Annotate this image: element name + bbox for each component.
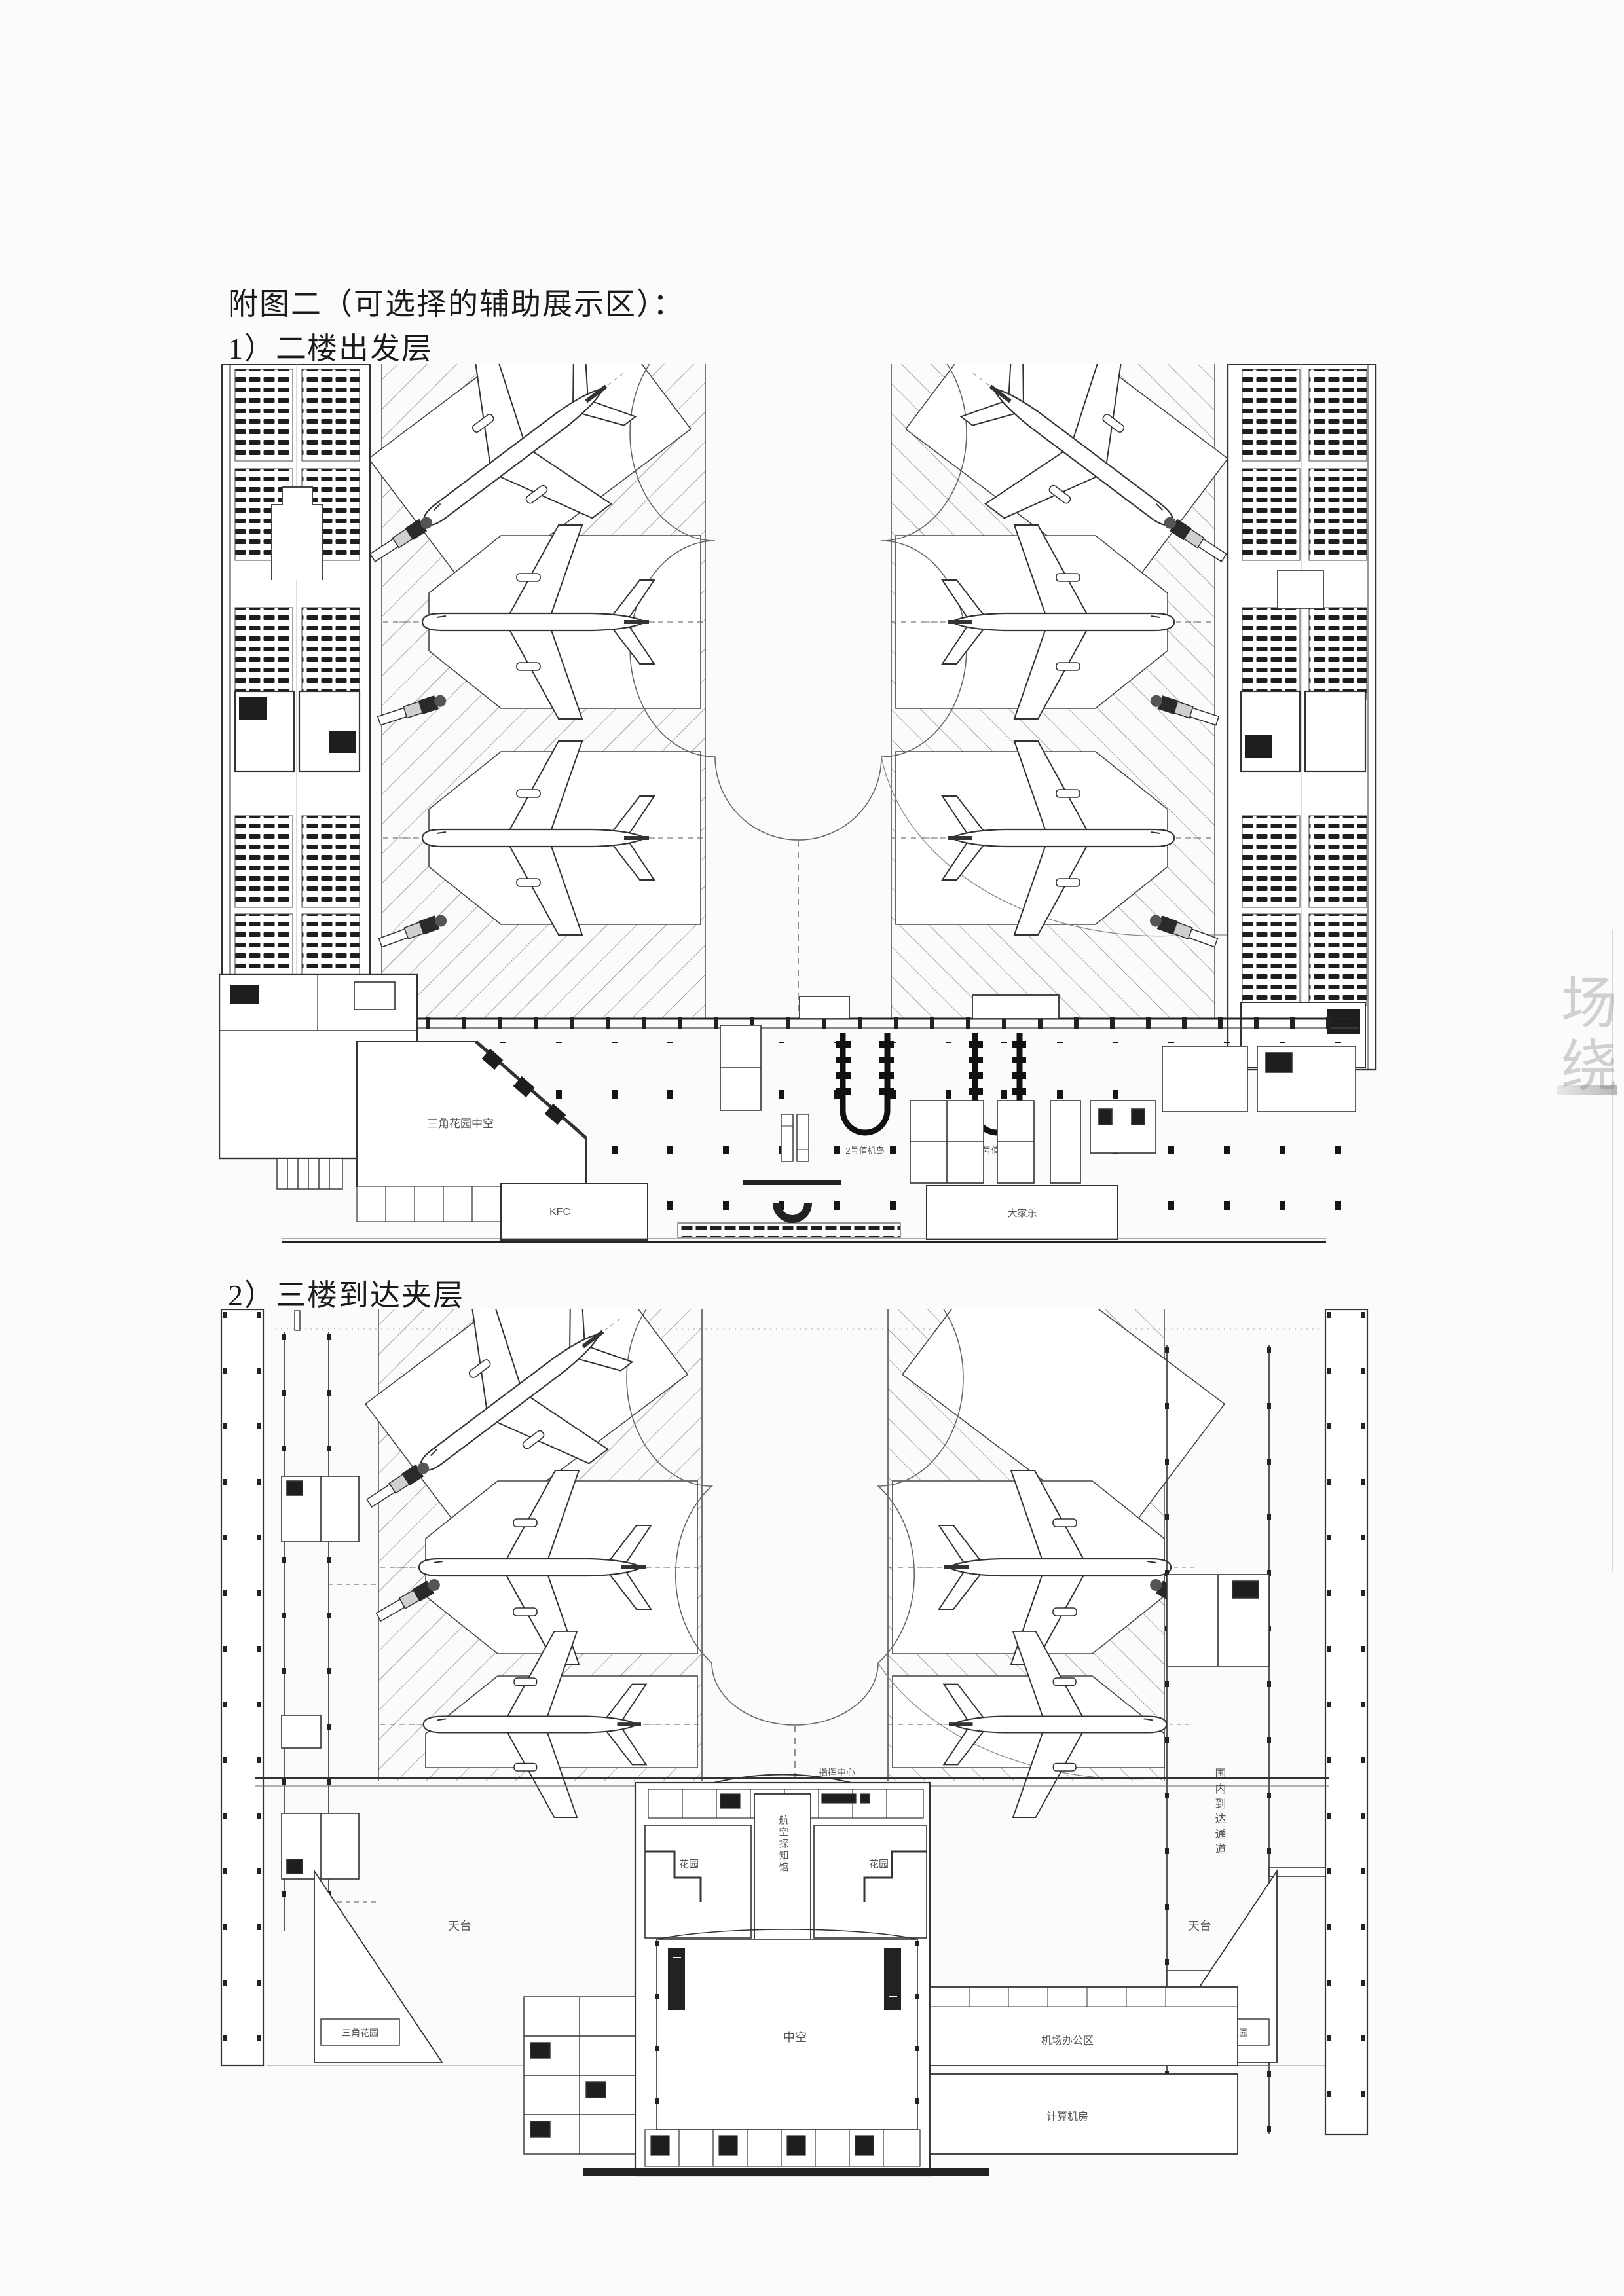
left-pier <box>222 364 370 1070</box>
kfc-room: KFC <box>501 1184 648 1240</box>
command-center-label: 指挥中心 <box>819 1767 855 1777</box>
svg-text:花园: 花园 <box>869 1859 889 1870</box>
svg-text:天台: 天台 <box>448 1920 471 1933</box>
svg-text:大家乐: 大家乐 <box>1007 1208 1037 1219</box>
svg-text:天台: 天台 <box>1188 1920 1211 1933</box>
figure-2-caption: 2）三楼到达夹层 <box>228 1271 464 1315</box>
svg-text:三角花园: 三角花园 <box>342 2028 378 2038</box>
scan-smudge <box>1557 1085 1617 1095</box>
island-label-left: 2号值机岛 <box>845 1146 884 1156</box>
aviation-hall-label: 航空探知馆 <box>778 1815 789 1874</box>
floor-plan-arrival-mezzanine: 国内到达通道 天台 天台 三角花园 三角花园 指挥中心 航空探知馆 <box>216 1309 1375 2180</box>
central-block: 指挥中心 航空探知馆 花园 花园 中空 <box>583 1767 989 2176</box>
left-wing-rooms <box>524 1997 635 2154</box>
atrium-label: 中空 <box>783 2031 807 2044</box>
restaurant-room: 大家乐 <box>927 1186 1118 1239</box>
right-wing-rooms: 机场办公区 计算机房 <box>930 1987 1238 2154</box>
scan-edge-line <box>1612 930 1613 1571</box>
svg-text:花园: 花园 <box>679 1859 699 1870</box>
margin-stamp-marks: 场 绕 <box>1561 972 1624 1098</box>
svg-text:KFC: KFC <box>549 1207 570 1218</box>
computer-room-label: 计算机房 <box>1046 2110 1088 2123</box>
arrival-corridor-label: 国内到达通道 <box>1213 1768 1227 1858</box>
floor-plan-departure-level: 三角花园中空 KFC 2号值机岛 4号值机岛 <box>219 364 1378 1245</box>
page-title: 附图二（可选择的辅助展示区）： <box>228 280 684 323</box>
svg-text:三角花园中空: 三角花园中空 <box>427 1118 494 1130</box>
right-pier <box>1228 364 1376 1070</box>
figure-1-caption: 1）二楼出发层 <box>228 325 433 368</box>
airport-office-label: 机场办公区 <box>1041 2035 1094 2047</box>
